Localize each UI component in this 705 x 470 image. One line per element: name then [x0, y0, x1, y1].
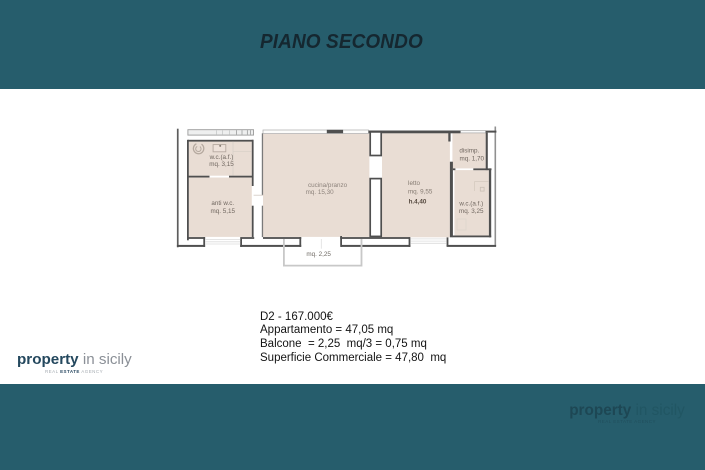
svg-text:mq. 3,15: mq. 3,15: [209, 161, 234, 168]
svg-text:mq. 9,55: mq. 9,55: [408, 188, 433, 195]
svg-text:mq. 2,25: mq. 2,25: [306, 251, 331, 258]
svg-text:mq. 1,70: mq. 1,70: [460, 156, 485, 163]
svg-text:mq. 5,15: mq. 5,15: [211, 208, 236, 215]
svg-text:cucina/pranzo: cucina/pranzo: [308, 182, 348, 189]
svg-text:h.4,40: h.4,40: [409, 199, 427, 206]
svg-text:mq. 15,30: mq. 15,30: [306, 189, 335, 196]
svg-text:w.c.(a.f.): w.c.(a.f.): [458, 201, 483, 208]
svg-text:mq. 3,25: mq. 3,25: [459, 208, 484, 215]
svg-text:letto: letto: [408, 180, 420, 187]
svg-text:disimp.: disimp.: [459, 148, 479, 155]
svg-text:anti w.c.: anti w.c.: [211, 200, 234, 207]
